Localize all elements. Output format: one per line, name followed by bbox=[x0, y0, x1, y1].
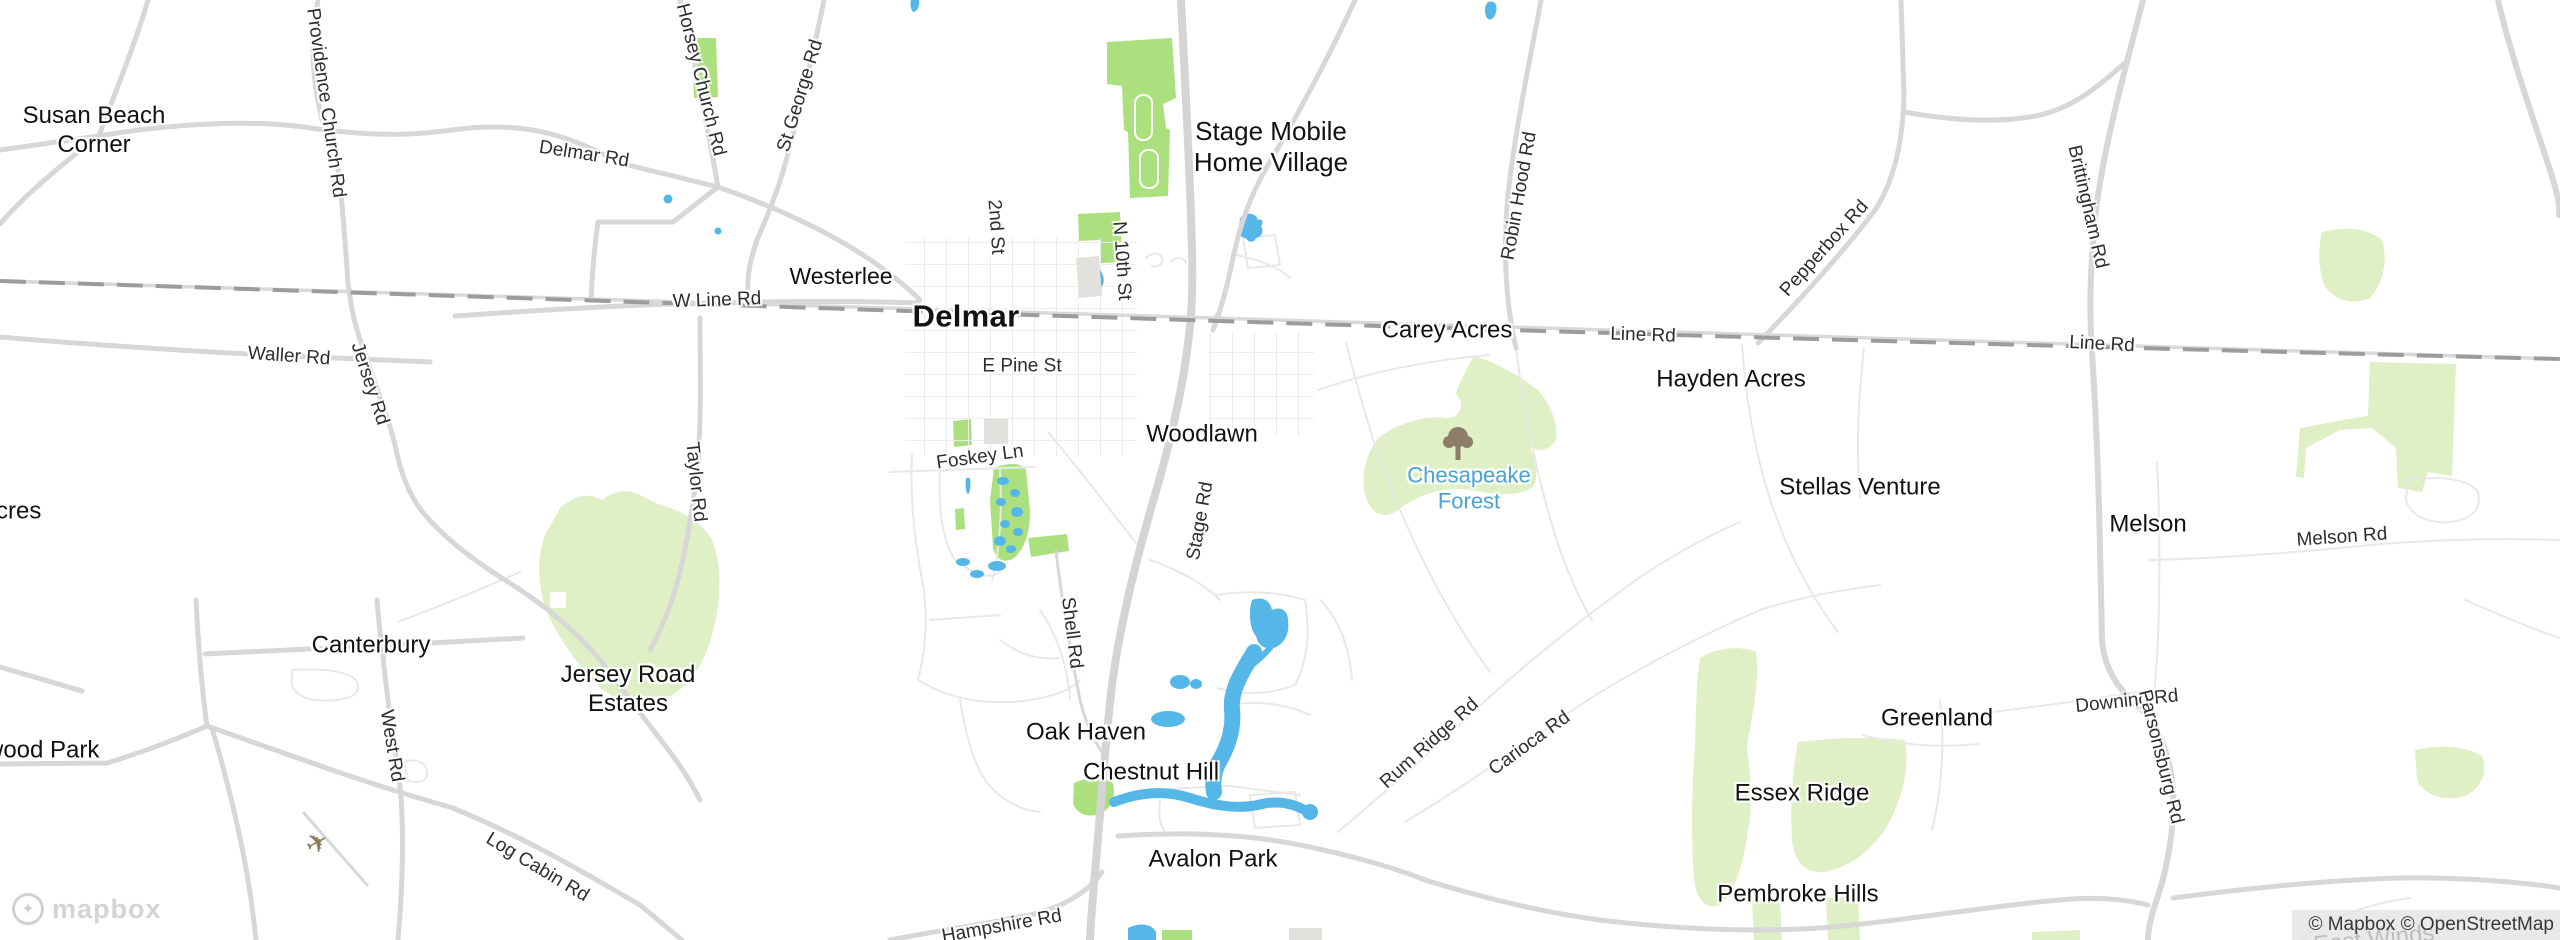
road-label-line-rd-west: Line Rd bbox=[1610, 323, 1676, 348]
attribution-text[interactable]: © Mapbox © OpenStreetMap bbox=[2308, 914, 2554, 936]
map-canvas[interactable]: Susan Beach Corner Westerlee Delmar Stag… bbox=[0, 0, 2560, 940]
road-label-2nd-st: 2nd St bbox=[982, 199, 1009, 255]
place-label-oak-haven: Oak Haven bbox=[1026, 719, 1146, 748]
place-label-wood-park: wood Park bbox=[0, 737, 99, 766]
forest-notch bbox=[1435, 392, 1461, 418]
attribution[interactable]: © Mapbox © OpenStreetMap bbox=[2292, 910, 2560, 940]
mapbox-logo-icon: ✦ bbox=[12, 893, 44, 925]
place-label-hayden-acres: Hayden Acres bbox=[1656, 366, 1805, 395]
place-label-essex-ridge: Essex Ridge bbox=[1735, 780, 1870, 809]
place-label-susan-beach-corner: Susan Beach Corner bbox=[23, 102, 166, 160]
place-label-canterbury: Canterbury bbox=[312, 632, 431, 661]
mapbox-wordmark: mapbox bbox=[52, 894, 162, 925]
place-label-melson: Melson bbox=[2109, 511, 2186, 540]
forest-notch bbox=[550, 592, 566, 608]
place-label-woodlawn: Woodlawn bbox=[1146, 421, 1258, 450]
mapbox-logo[interactable]: ✦ mapbox bbox=[12, 893, 162, 925]
place-label-greenland: Greenland bbox=[1881, 705, 1993, 734]
place-label-stellas-venture: Stellas Venture bbox=[1779, 474, 1940, 503]
place-label-avalon-park: Avalon Park bbox=[1149, 846, 1278, 875]
place-label-jersey-road-estates: Jersey Road Estates bbox=[561, 661, 696, 719]
place-label-westerlee: Westerlee bbox=[789, 263, 892, 291]
place-label-stage-mobile-home-village: Stage Mobile Home Village bbox=[1194, 116, 1348, 178]
place-label-acres: cres bbox=[0, 498, 41, 527]
road-label-line-rd-east: Line Rd bbox=[2069, 332, 2136, 358]
road-label-e-pine-st: E Pine St bbox=[982, 356, 1061, 379]
place-label-pembroke-hills: Pembroke Hills bbox=[1717, 881, 1878, 910]
creek-pool bbox=[1302, 804, 1318, 820]
place-label-delmar: Delmar bbox=[913, 297, 1020, 334]
place-label-chesapeake-forest: Chesapeake Forest bbox=[1407, 463, 1531, 516]
road-label-w-line-rd: W Line Rd bbox=[672, 288, 761, 314]
place-label-chestnut-hill: Chestnut Hill bbox=[1083, 759, 1219, 788]
place-label-carey-acres: Carey Acres bbox=[1382, 317, 1513, 346]
